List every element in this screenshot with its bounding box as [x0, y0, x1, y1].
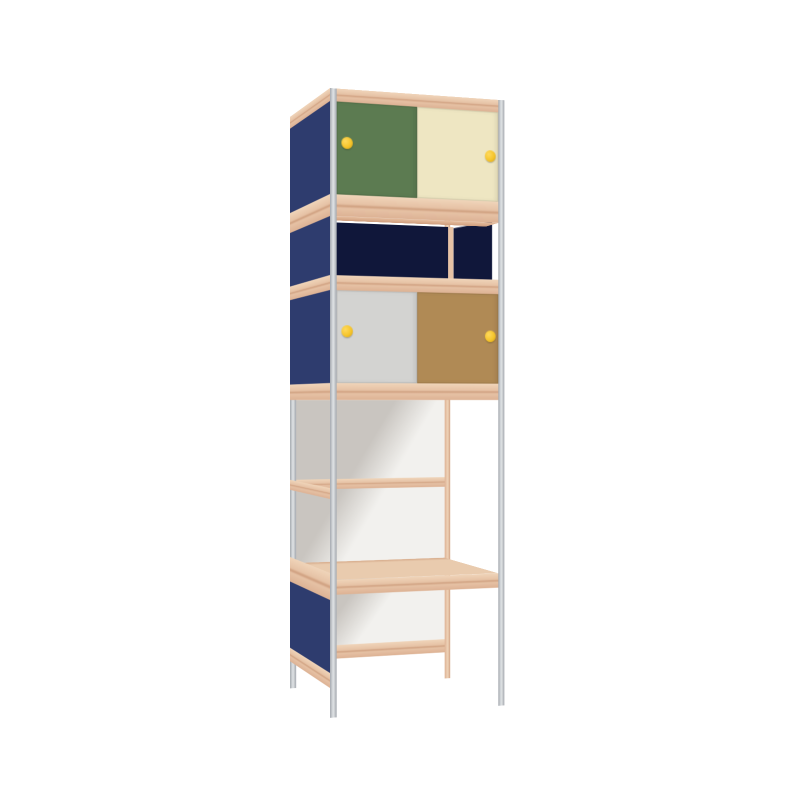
shelving-unit [330, 88, 504, 718]
shelf-band-3 [337, 383, 499, 400]
front-right-post [498, 100, 504, 706]
bottom-shelf-front-edge [337, 573, 499, 595]
side-shelf-band-3 [290, 383, 330, 400]
door-knob-gray [341, 325, 352, 337]
render-scene [0, 0, 800, 800]
side-panel-lower-cabinet [290, 290, 330, 385]
sliding-door-green [337, 101, 417, 198]
door-knob-cream [485, 150, 496, 162]
side-mid-rail [290, 480, 330, 499]
left-side-face [290, 88, 330, 718]
door-knob-brown [485, 331, 496, 343]
front-left-post [330, 88, 337, 718]
front-face [330, 88, 504, 718]
door-knob-green [341, 137, 352, 150]
